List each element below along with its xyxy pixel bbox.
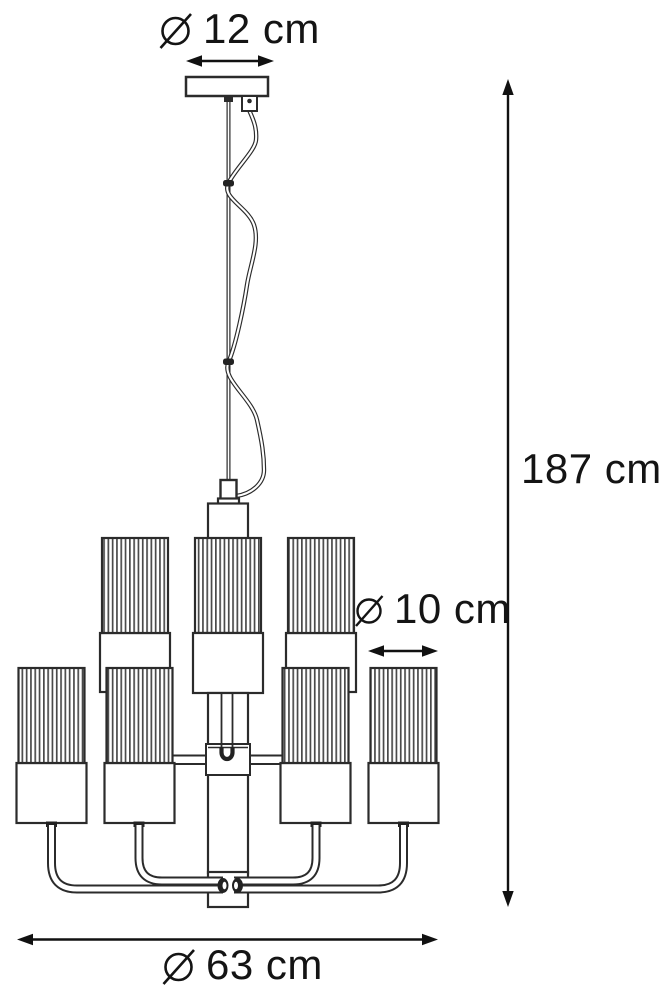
- chandelier-line-art: [0, 0, 672, 996]
- dimension-drawing: 12 cm 187 cm 10 cm 63 cm: [0, 0, 672, 996]
- central-stem: [206, 693, 250, 873]
- upper-right-shade: [288, 538, 354, 633]
- label-shade-diameter: 10 cm: [354, 586, 511, 632]
- suspension-assembly: [186, 77, 268, 496]
- upper-left-shade: [102, 538, 168, 633]
- cord-clamp-lower: [223, 359, 234, 366]
- ceiling-canopy: [186, 77, 268, 96]
- label-canopy-diameter: 12 cm: [158, 6, 320, 52]
- lower-center-left-socket: [105, 763, 175, 823]
- connector-barrel: [221, 480, 237, 500]
- canopy-diameter-arrow: [186, 55, 274, 66]
- diameter-icon: [354, 590, 385, 628]
- lower-center-right-socket: [281, 763, 351, 823]
- lower-center-right-shade: [283, 668, 349, 763]
- shade-diameter-value: 10 cm: [394, 586, 511, 632]
- lower-far-left-socket: [17, 763, 87, 823]
- lower-far-left-shade: [19, 668, 85, 763]
- upper-center-shade: [195, 538, 261, 633]
- fixture-diameter-value: 63 cm: [206, 942, 323, 988]
- total-height-value: 187 cm: [521, 446, 662, 492]
- cord-exit-box: [242, 96, 257, 111]
- stem-body: [208, 693, 248, 873]
- lower-far-right-shade: [371, 668, 437, 763]
- cord-clamp-upper: [223, 180, 234, 187]
- label-fixture-diameter: 63 cm: [161, 942, 323, 988]
- power-cord: [227, 111, 264, 496]
- diameter-icon: [158, 7, 194, 51]
- canopy-diameter-value: 12 cm: [203, 6, 320, 52]
- diameter-icon: [161, 943, 197, 987]
- label-total-height: 187 cm: [521, 446, 662, 492]
- lower-center-left-shade: [107, 668, 173, 763]
- upper-center-socket: [193, 633, 263, 693]
- total-height-arrow: [502, 79, 513, 907]
- top-connector: [218, 480, 239, 505]
- canopy-rod-stub: [224, 96, 233, 103]
- stem-head-box: [208, 504, 248, 541]
- lower-far-right-socket: [369, 763, 439, 823]
- shade-diameter-arrow: [368, 645, 438, 656]
- tube-end-cap-left-hole: [223, 882, 227, 890]
- tube-end-cap-right-hole: [234, 882, 238, 890]
- cord-box-screw: [247, 99, 252, 104]
